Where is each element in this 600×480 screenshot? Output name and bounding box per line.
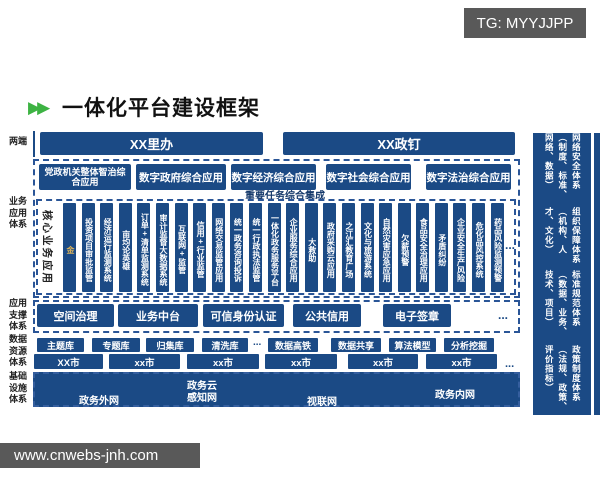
core-bars-ellipsis: ... [505,238,515,252]
core-bar: 订单+清单监测系统 [137,203,150,292]
support-box-esign: 电子签章 [383,304,451,327]
data-box-data-rail: 数据高铁 [268,338,318,352]
side-label-business: 业务应用体系 [2,196,34,231]
core-bar: 大救助 [305,203,318,292]
data-box-theme-lib: 主题库 [37,338,84,352]
city-box: xx市 [187,354,259,369]
infra-net-external: 政务外网 [79,392,119,407]
app-box-party-gov: 党政机关整体智治综合应用 [39,164,131,190]
side-label-infra: 基础设施体系 [2,371,34,406]
side-label-business-text: 业务应用体系 [8,196,28,231]
pillar-standards: 标准规范体系（数据、业务、技术、项目） [542,270,583,344]
infra-sensing-net: 感知网 [187,389,217,404]
core-bar: 危化品风控系统 [472,203,485,292]
core-bar: 食品安全治理应用 [416,203,429,292]
core-bar: 信用+行业监管 [193,203,206,292]
diagram-canvas: TG: MYYJJPP www.cnwebs-jnh.com ▶▶ 一体化平台建… [0,0,600,480]
page-title: 一体化平台建设框架 [62,92,260,122]
core-bar: 投资项目审批监管 [82,203,95,292]
data-box-special-lib: 专题库 [92,338,140,352]
core-bars-row: 金 投资项目审批监管 经济运行监测系统 亩均论英雄 订单+清单监测系统 审计监督… [63,203,504,292]
core-bar: 统一政务咨询投诉 [230,203,243,292]
city-box: XX市 [34,354,103,369]
pillar-policy: 政策制度体系（法规、政策、评价指标） [542,345,583,416]
core-bar: 矛盾纠纷 [435,203,448,292]
data-ellipsis: ... [253,337,261,348]
app-box-digital-gov: 数字政府综合应用 [136,164,226,190]
data-box-clean-lib: 清洗库 [202,338,248,352]
support-ellipsis: ... [498,308,508,322]
city-box: xx市 [265,354,337,369]
pillar-network-security: 网络安全体系（制度、标准、网络、数据） [542,133,583,207]
core-bar: 药品风险监测预警 [491,203,504,292]
core-bar: 金 [63,203,76,292]
support-box-credit: 公共信用 [293,304,361,327]
core-bar: 亩均论英雄 [119,203,132,292]
support-box-middle-platform: 业务中台 [118,304,198,327]
infrastructure-band: 政务外网 政务云 感知网 视联网 政务内网 [33,372,520,407]
support-box-identity: 可信身份认证 [203,304,284,327]
side-label-support: 应用支撑体系 [2,298,34,333]
terminal-app-lib: XX里办 [40,132,263,155]
core-business-label: 核心业务应用 [40,210,55,290]
infra-net-internal: 政务内网 [435,386,475,401]
guarantee-pillar: 网络安全体系（制度、标准、网络、数据） 组织保障体系（机构、人才、文化） 标准规… [533,133,591,415]
site-watermark-badge: www.cnwebs-jnh.com [0,443,200,468]
pillar-organization: 组织保障体系（机构、人才、文化） [542,207,583,270]
side-label-data-text: 数据资源体系 [8,334,28,369]
pillar-edge-strip [594,133,600,415]
side-label-data: 数据资源体系 [2,334,34,369]
side-label-infra-text: 基础设施体系 [8,371,28,406]
terminals-left-line [33,131,35,157]
support-box-space: 空间治理 [37,304,114,327]
city-box: xx市 [109,354,180,369]
app-box-digital-society: 数字社会综合应用 [326,164,411,190]
side-label-support-text: 应用支撑体系 [8,298,28,333]
core-bar: 统一行政执法监管 [249,203,262,292]
core-bar: 政府采购云应用 [323,203,336,292]
city-box: xx市 [426,354,497,369]
app-box-digital-law: 数字法治综合应用 [426,164,511,190]
city-box: xx市 [348,354,418,369]
core-bar: 一体化政务服务平台 [268,203,281,292]
infra-video-net: 视联网 [307,393,337,408]
core-bar: 文化与旅游系统 [361,203,374,292]
city-ellipsis: ... [505,358,514,370]
tg-watermark-badge: TG: MYYJJPP [464,8,586,38]
core-bar: 经济运行监测系统 [100,203,113,292]
side-label-terminals: 两端 [2,136,34,148]
data-box-algorithm: 算法模型 [389,338,436,352]
terminal-app-ding: XX政钉 [283,132,515,155]
core-bar: 企业服务综合应用 [286,203,299,292]
core-bar: 自然灾害应急应用 [379,203,392,292]
chevron-icon: ▶▶ [28,98,46,118]
data-box-collect-lib: 归集库 [146,338,194,352]
core-bar: 企业安全生产风险 [453,203,466,292]
core-bar: 审计监督大数据系统 [156,203,169,292]
data-box-data-share: 数据共享 [331,338,381,352]
core-bar: 之江汇教育广场 [342,203,355,292]
core-bar: 欠薪预警 [398,203,411,292]
core-bar: 网络交易监管应用 [212,203,225,292]
data-box-analytics: 分析挖掘 [444,338,494,352]
core-bar: 互联网+监管 [175,203,188,292]
